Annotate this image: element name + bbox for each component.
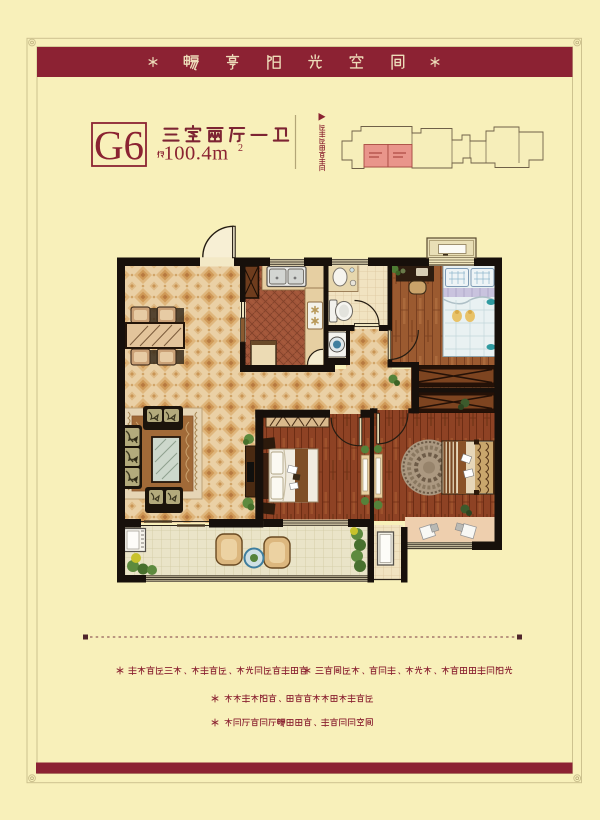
svg-text:G6: G6 xyxy=(94,122,144,168)
svg-text:100.4m: 100.4m xyxy=(164,143,229,165)
svg-text:2: 2 xyxy=(238,143,243,154)
